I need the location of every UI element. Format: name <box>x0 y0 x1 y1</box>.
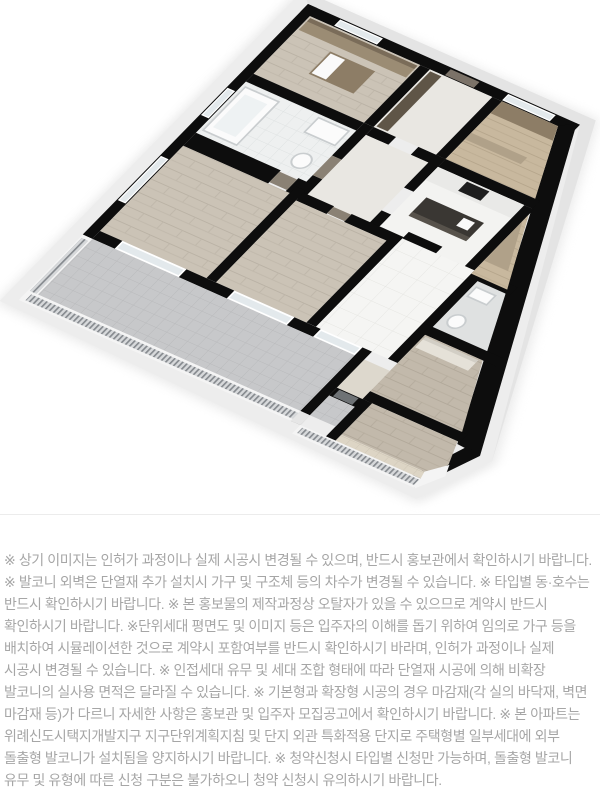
building <box>0 0 600 514</box>
disclaimer-text: ※ 상기 이미지는 인허가 과정이나 실제 시공시 변경될 수 있으며, 반드시… <box>4 549 594 791</box>
promo-page: ※ 상기 이미지는 인허가 과정이나 실제 시공시 변경될 수 있으며, 반드시… <box>0 0 600 790</box>
floorplan-image <box>0 0 600 514</box>
disclaimer-section: ※ 상기 이미지는 인허가 과정이나 실제 시공시 변경될 수 있으며, 반드시… <box>0 515 600 791</box>
floorplan-svg <box>0 0 600 514</box>
